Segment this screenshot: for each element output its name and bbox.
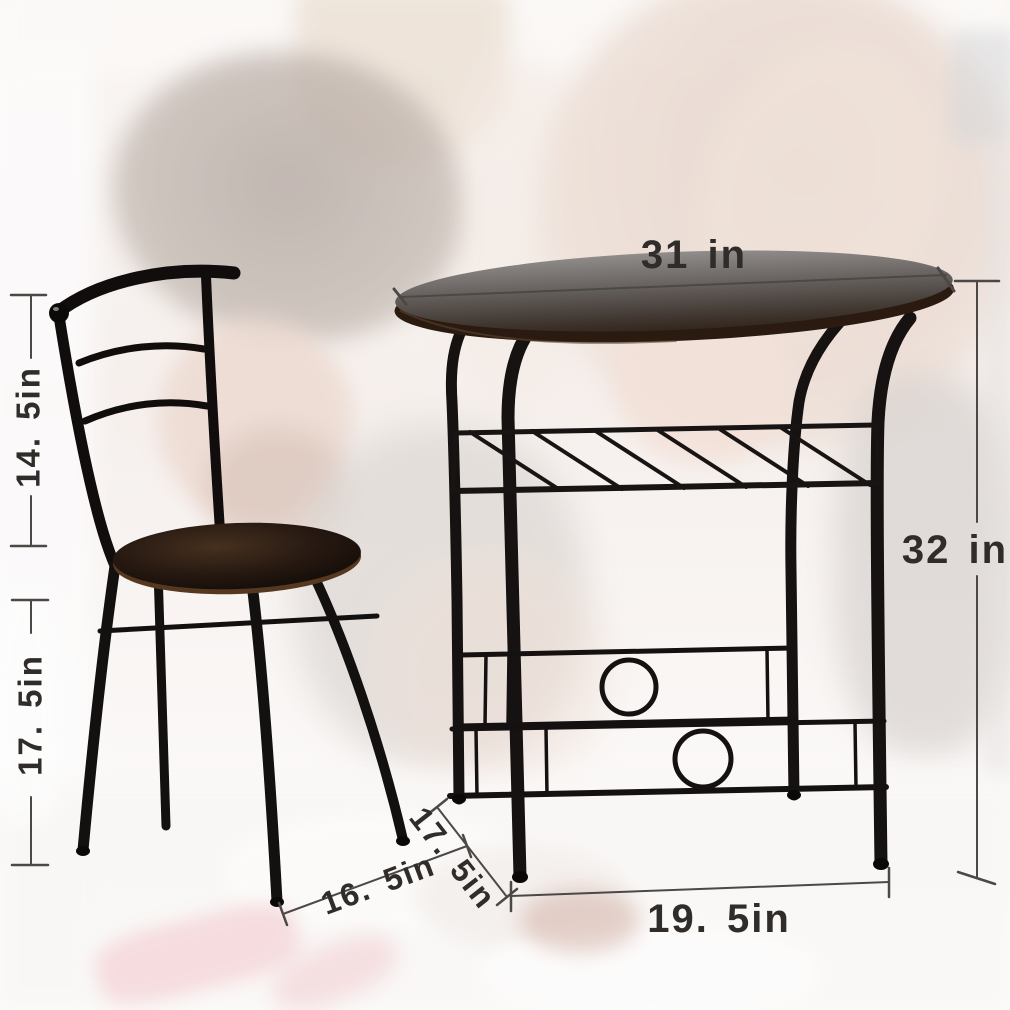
table-illustration [393,241,956,883]
chair-illustration [49,271,410,907]
back-panel-bar [485,655,486,726]
furniture-illustration [0,0,1010,1010]
back-panel [459,648,795,726]
dimension-label-table-base-width: 19. 5in [647,899,791,939]
dimension-line-table-height [955,281,999,884]
wine-rack-slats [470,427,870,490]
chair-seat-surface [112,519,362,594]
back-panel-circle [602,660,656,714]
chair-finial-highlight [53,307,59,311]
back-panel-bar [508,654,509,725]
front-panel-circle [675,731,731,787]
chair-backrest-slat [85,403,207,421]
dimension-label-table-width: 31 in [641,235,747,275]
wine-rack-front-rail [453,483,879,491]
back-panel-bar [767,649,768,720]
chair-leg-back-left [158,570,166,826]
chair-backrest-slat [79,346,204,363]
table-leg-front-right [877,318,910,863]
product-dimension-image: 31 in 32 in 19. 5in 14. 5in 17. 5in 16. … [0,0,1010,1010]
front-panel-bar [546,728,547,795]
chair-backrest [58,271,234,568]
chair-leg-front-right [252,584,277,901]
dimension-label-chair-seat-height: 17. 5in [14,654,47,776]
front-panel-bar [855,722,856,788]
chair-leg-front-left [83,566,115,850]
chair-backrest-right-post [206,276,222,562]
dimension-label-chair-back-height: 14. 5in [12,366,45,488]
wine-rack-shelf [453,425,879,491]
chair-finial-ball [49,303,69,323]
chair-legs [83,566,403,901]
dimension-label-table-height: 32 in [902,530,1008,570]
chair-seat [112,519,362,599]
front-panel-bar [476,729,477,796]
wine-rack-back-rail [456,425,876,433]
chair-leg-back-right [312,572,403,840]
